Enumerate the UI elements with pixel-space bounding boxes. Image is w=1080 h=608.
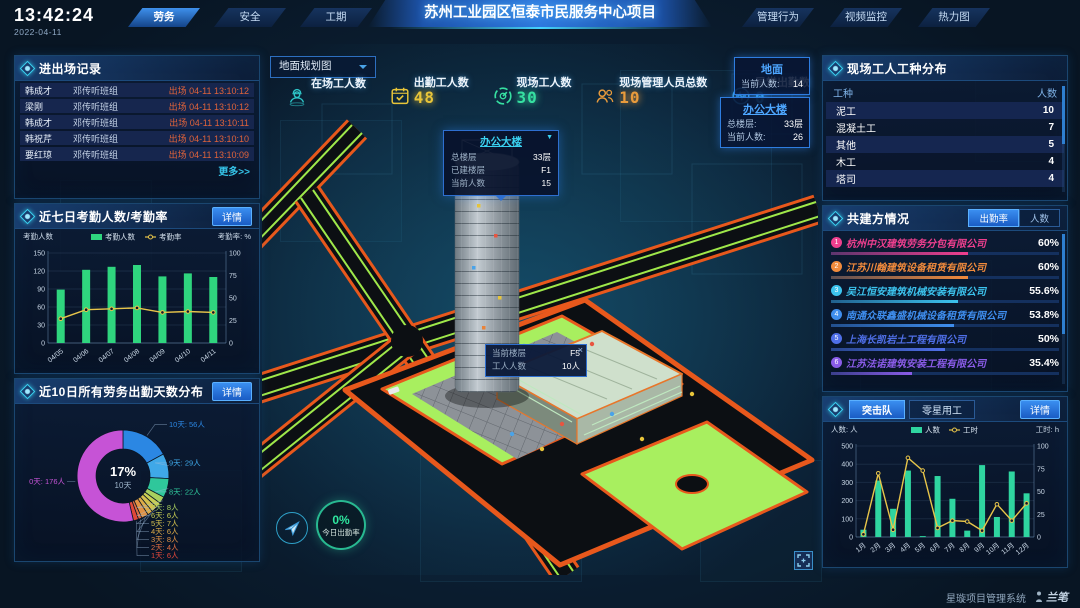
floor-card-地面[interactable]: 地面当前人数:14: [734, 57, 810, 95]
svg-text:考勤人数: 考勤人数: [105, 232, 135, 242]
more-link[interactable]: 更多>>: [15, 161, 259, 178]
header-tabs-left: 劳务安全工期: [128, 8, 372, 27]
worktype-count: 5: [1048, 139, 1054, 150]
system-name: 星璇项目管理系统: [946, 590, 1026, 605]
chevron-down-icon[interactable]: ▼: [546, 134, 553, 141]
tooltip-label: 已建楼层: [451, 164, 485, 177]
attendance-bar-line-chart: 考勤人数考勤率: %考勤人数考勤率03060901201500255075100…: [21, 229, 253, 370]
svg-text:50: 50: [1037, 489, 1045, 496]
worktype-name: 混凝土工: [836, 120, 876, 135]
diamond-icon: [20, 60, 36, 76]
svg-text:100: 100: [229, 251, 241, 258]
partner-name: 吴江恒安建筑机械安装有限公司: [846, 283, 1025, 298]
worktype-name: 其他: [836, 137, 856, 152]
vendor-logo: 兰笔: [1034, 589, 1068, 605]
panel-title: 现场工人工种分布: [847, 60, 947, 77]
panel-title: 近10日所有劳务出勤天数分布: [39, 383, 203, 400]
svg-text:0: 0: [41, 341, 45, 348]
building-tooltip: 办公大楼 ▼ 总楼层33层已建楼层F1当前人数15: [443, 130, 559, 196]
svg-text:1天: 6人: 1天: 6人: [151, 551, 179, 560]
stat-现场工人数: 现场工人数30: [492, 74, 572, 107]
record-row: 韩祝芹邓传听班组出场 04-11 13:10:10: [20, 131, 254, 145]
stat-出勤工人数: 出勤工人数48: [389, 74, 469, 107]
record-exit-time: 出场 04-11 13:10:12: [169, 100, 249, 113]
record-exit-time: 出场 04-11 13:10:12: [169, 84, 249, 97]
partner-value: 53.8%: [1029, 309, 1059, 321]
scrollbar[interactable]: [1062, 86, 1065, 192]
attendance-rate-value: 0%: [332, 513, 349, 527]
panel-entry-exit-records: 进出场记录 韩成才邓传听班组出场 04-11 13:10:12梁刚邓传听班组出场…: [14, 55, 260, 199]
header-tab-热力图[interactable]: 热力图: [918, 8, 990, 27]
svg-text:500: 500: [841, 444, 853, 451]
partner-item: 5上海长凯岩土工程有限公司50%: [831, 331, 1059, 351]
record-worker-name: 要红琼: [25, 148, 73, 161]
svg-text:25: 25: [229, 318, 237, 325]
svg-text:25: 25: [1037, 512, 1045, 519]
svg-text:10天: 56人: 10天: 56人: [169, 420, 205, 429]
svg-text:工时: 工时: [963, 425, 978, 435]
svg-text:04/10: 04/10: [174, 348, 192, 364]
svg-text:工时: h: 工时: h: [1036, 424, 1059, 434]
svg-text:90: 90: [37, 287, 45, 294]
partner-rank-badge: 4: [831, 309, 842, 320]
record-team-name: 邓传听班组: [73, 84, 169, 97]
worktype-row: 混凝土工7: [826, 119, 1064, 136]
page-title: 苏州工业园区恒泰市民服务中心项目: [368, 0, 712, 27]
svg-text:4月: 4月: [899, 541, 913, 554]
tooltip-label: 工人人数: [492, 360, 526, 373]
record-row: 韩成才邓传听班组出场 04-11 13:10:11: [20, 115, 254, 129]
record-team-name: 邓传听班组: [73, 100, 169, 113]
panel-teams-chart: 突击队零星用工 详情 人数: 人工时: h人数工时010020030040050…: [822, 396, 1068, 568]
tooltip-label: 当前楼层: [492, 347, 526, 360]
worktype-table-header: 工种 人数: [823, 81, 1067, 102]
svg-text:0: 0: [1037, 535, 1041, 542]
stat-value: 10: [619, 90, 707, 107]
building-tooltip-row: 当前人数15: [451, 177, 551, 190]
partner-value: 50%: [1038, 333, 1059, 345]
record-row: 韩成才邓传听班组出场 04-11 13:10:12: [20, 83, 254, 97]
partner-name: 江苏法诺建筑安装工程有限公司: [846, 355, 1025, 370]
stat-现场管理人员总数: 现场管理人员总数10: [594, 74, 707, 107]
floor-tooltip: × 当前楼层F5工人人数10人: [485, 344, 587, 377]
stat-value: [311, 91, 366, 107]
record-exit-time: 出场 04-11 13:10:11: [169, 116, 249, 129]
svg-text:9天: 29人: 9天: 29人: [169, 458, 201, 467]
navigation-arrow-icon: [282, 518, 302, 538]
stat-label: 在场工人数: [311, 75, 366, 91]
partner-item: 3吴江恒安建筑机械安装有限公司55.6%: [831, 283, 1059, 303]
pond: [676, 475, 708, 493]
svg-text:04/06: 04/06: [72, 348, 90, 364]
partner-name: 南通众联鑫盛机械设备租赁有限公司: [846, 307, 1025, 322]
record-worker-name: 韩成才: [25, 84, 73, 97]
title-underline: [390, 27, 690, 29]
svg-text:60: 60: [37, 305, 45, 312]
header-tab-劳务[interactable]: 劳务: [128, 8, 200, 27]
panel-title: 近七日考勤人数/考勤率: [39, 208, 168, 225]
partner-rank-badge: 3: [831, 285, 842, 296]
partner-progress: [831, 372, 912, 375]
partner-name: 上海长凯岩土工程有限公司: [846, 331, 1034, 346]
road-intersection: [391, 325, 423, 357]
building-tooltip-title[interactable]: 办公大楼: [451, 134, 551, 149]
diamond-icon: [828, 210, 844, 226]
partners-tab-人数[interactable]: 人数: [1019, 209, 1060, 227]
worktype-name: 木工: [836, 154, 856, 169]
attendance-days-donut-chart: 10天: 56人9天: 29人8天: 22人7天: 8人6天: 6人5天: 7人…: [21, 404, 253, 560]
partner-rank-badge: 5: [831, 333, 842, 344]
gauge-icon: [492, 85, 514, 107]
svg-text:3月: 3月: [884, 541, 898, 554]
worktype-name: 塔司: [836, 171, 856, 186]
tooltip-value: F1: [541, 164, 551, 177]
panel-attendance-days-distribution: 近10日所有劳务出勤天数分布 详情 10天: 56人9天: 29人8天: 22人…: [14, 378, 260, 562]
svg-text:100: 100: [841, 516, 853, 523]
record-worker-name: 梁刚: [25, 100, 73, 113]
header-tab-工期[interactable]: 工期: [300, 8, 372, 27]
partner-value: 55.6%: [1029, 285, 1059, 297]
teams-bar-line-chart: 人数: 人工时: h人数工时01002003004005000255075100…: [829, 422, 1061, 564]
teams-tab-突击队[interactable]: 突击队: [849, 400, 905, 419]
floor-card-label: 当前人数:: [741, 78, 780, 91]
floor-card-title: 地面: [741, 61, 803, 77]
svg-text:0: 0: [229, 341, 233, 348]
floor-tooltip-row: 当前楼层F5: [492, 347, 580, 360]
vendor-logo-icon: [1034, 591, 1044, 603]
worktype-header-count: 人数: [1037, 85, 1057, 100]
svg-text:8月: 8月: [958, 541, 972, 554]
worktype-table: 泥工10混凝土工7其他5木工4塔司4: [823, 102, 1067, 187]
partner-item: 1杭州中汉建筑劳务分包有限公司60%: [831, 235, 1059, 255]
partner-progress: [831, 276, 968, 279]
svg-text:120: 120: [33, 269, 45, 276]
panel-title: 共建方情况: [847, 210, 910, 227]
svg-text:100: 100: [1037, 444, 1049, 451]
calendar-check-icon: [389, 85, 411, 107]
worktype-name: 泥工: [836, 103, 856, 118]
svg-text:04/08: 04/08: [123, 348, 141, 364]
header-tabs-right: 管理行为视频监控热力图: [742, 8, 990, 27]
floor-card-value: 14: [793, 78, 803, 91]
teams-tabs: 突击队零星用工: [849, 400, 975, 419]
panel-worktype-distribution: 现场工人工种分布 工种 人数 泥工10混凝土工7其他5木工4塔司4: [822, 55, 1068, 201]
svg-text:人数: 人数: [925, 425, 940, 435]
building-tooltip-row: 已建楼层F1: [451, 164, 551, 177]
worker-icon: [286, 85, 308, 107]
svg-text:04/11: 04/11: [200, 348, 218, 364]
partner-progress: [831, 300, 958, 303]
svg-text:12月: 12月: [1014, 541, 1031, 556]
svg-text:9月: 9月: [973, 541, 987, 554]
partner-rank-badge: 1: [831, 237, 842, 248]
tooltip-label: 总楼层: [451, 151, 477, 164]
floor-card-label: 总楼层:: [727, 118, 757, 131]
record-team-name: 邓传听班组: [73, 116, 169, 129]
worktype-row: 塔司4: [826, 170, 1064, 187]
header-tab-视频监控[interactable]: 视频监控: [830, 8, 902, 27]
worktype-count: 7: [1048, 122, 1054, 133]
partner-value: 60%: [1038, 237, 1059, 249]
teams-tab-零星用工[interactable]: 零星用工: [909, 400, 975, 419]
svg-text:04/09: 04/09: [149, 348, 167, 364]
header-tab-安全[interactable]: 安全: [214, 8, 286, 27]
diamond-icon: [828, 60, 844, 76]
svg-text:考勤率: %: 考勤率: %: [218, 231, 252, 241]
svg-text:0: 0: [849, 535, 853, 542]
record-team-name: 邓传听班组: [73, 148, 169, 161]
diamond-icon: [20, 208, 36, 224]
stat-在场工人数: 在场工人数: [286, 75, 366, 107]
svg-text:11月: 11月: [1000, 541, 1016, 556]
svg-text:04/07: 04/07: [98, 348, 116, 364]
tooltip-value: 10人: [562, 360, 580, 373]
record-exit-time: 出场 04-11 13:10:10: [169, 132, 249, 145]
partner-item: 2江苏川翰建筑设备租赁有限公司60%: [831, 259, 1059, 279]
scrollbar[interactable]: [1062, 234, 1065, 384]
svg-text:17%: 17%: [110, 464, 136, 479]
svg-text:10月: 10月: [985, 541, 1002, 556]
partner-progress: [831, 252, 968, 255]
svg-text:8天: 22人: 8天: 22人: [169, 487, 201, 496]
worktype-row: 木工4: [826, 153, 1064, 170]
partner-item: 6江苏法诺建筑安装工程有限公司35.4%: [831, 355, 1059, 375]
current-date: 2022-04-11: [14, 27, 94, 37]
svg-text:0天: 176人: 0天: 176人: [29, 477, 65, 486]
current-time: 13:42:24: [14, 5, 94, 26]
svg-text:7月: 7月: [943, 541, 957, 554]
partner-value: 60%: [1038, 261, 1059, 273]
svg-text:300: 300: [841, 480, 853, 487]
vendor-logo-text: 兰笔: [1046, 589, 1068, 605]
svg-text:50: 50: [229, 296, 237, 303]
records-list: 韩成才邓传听班组出场 04-11 13:10:12梁刚邓传听班组出场 04-11…: [15, 83, 259, 161]
tooltip-value: 33层: [533, 151, 551, 164]
clock: 13:42:24 2022-04-11: [14, 5, 94, 37]
worktype-row: 其他5: [826, 136, 1064, 153]
tooltip-value: 15: [542, 177, 551, 190]
partner-progress: [831, 324, 954, 327]
stat-value: 30: [517, 90, 572, 107]
tooltip-label: 当前人数: [451, 177, 485, 190]
floor-card-value: 33层: [784, 118, 803, 131]
svg-text:考勤人数: 考勤人数: [23, 231, 53, 241]
svg-text:人数: 人: 人数: 人: [831, 424, 858, 434]
svg-text:1月: 1月: [854, 541, 868, 554]
svg-text:考勤率: 考勤率: [159, 232, 182, 242]
svg-text:5月: 5月: [913, 541, 927, 554]
people-icon: [594, 85, 616, 107]
panel-attendance-chart: 近七日考勤人数/考勤率 详情 考勤人数考勤率: %考勤人数考勤率03060901…: [14, 203, 260, 374]
svg-text:75: 75: [229, 273, 237, 280]
partner-value: 35.4%: [1029, 357, 1059, 369]
partners-tabs: 出勤率人数: [968, 209, 1060, 227]
floor-tooltip-row: 工人人数10人: [492, 360, 580, 373]
record-row: 梁刚邓传听班组出场 04-11 13:10:12: [20, 99, 254, 113]
floor-card-办公大楼[interactable]: 办公大楼总楼层:33层当前人数:26: [720, 97, 810, 148]
partner-rank-badge: 6: [831, 357, 842, 368]
svg-text:200: 200: [841, 498, 853, 505]
partner-name: 江苏川翰建筑设备租赁有限公司: [846, 259, 1034, 274]
worktype-row: 泥工10: [826, 102, 1064, 119]
partner-progress: [831, 348, 945, 351]
worktype-count: 10: [1043, 105, 1054, 116]
diamond-icon: [828, 401, 844, 417]
floor-card-value: 26: [793, 131, 803, 144]
close-icon[interactable]: ×: [578, 345, 583, 355]
panel-partners: 共建方情况 出勤率人数 1杭州中汉建筑劳务分包有限公司60%2江苏川翰建筑设备租…: [822, 205, 1068, 392]
building-tooltip-row: 总楼层33层: [451, 151, 551, 164]
today-attendance-badge: 0% 今日出勤率: [316, 500, 366, 550]
svg-text:400: 400: [841, 462, 853, 469]
svg-text:6月: 6月: [928, 541, 942, 554]
floor-card-title: 办公大楼: [727, 101, 803, 117]
dashboard-root: { "header": { "time": "13:42:24", "date"…: [0, 0, 1080, 608]
record-exit-time: 出场 04-11 13:10:09: [169, 148, 249, 161]
detail-button[interactable]: 详情: [212, 207, 252, 226]
partner-name: 杭州中汉建筑劳务分包有限公司: [846, 235, 1034, 250]
svg-text:75: 75: [1037, 466, 1045, 473]
record-worker-name: 韩成才: [25, 116, 73, 129]
compass-control[interactable]: [276, 512, 308, 544]
detail-button[interactable]: 详情: [212, 382, 252, 401]
stat-value: 48: [414, 90, 469, 107]
panel-title: 进出场记录: [39, 60, 102, 77]
record-worker-name: 韩祝芹: [25, 132, 73, 145]
fullscreen-icon: [795, 552, 812, 569]
worktype-count: 4: [1048, 156, 1054, 167]
detail-button[interactable]: 详情: [1020, 400, 1060, 419]
header-tab-管理行为[interactable]: 管理行为: [742, 8, 814, 27]
record-row: 要红琼邓传听班组出场 04-11 13:10:09: [20, 147, 254, 161]
svg-text:10天: 10天: [115, 481, 132, 490]
svg-text:30: 30: [37, 323, 45, 330]
fullscreen-button[interactable]: [794, 551, 813, 570]
svg-text:150: 150: [33, 251, 45, 258]
partner-rank-badge: 2: [831, 261, 842, 272]
attendance-rate-label: 今日出勤率: [322, 527, 360, 538]
record-team-name: 邓传听班组: [73, 132, 169, 145]
floor-card-label: 当前人数:: [727, 131, 766, 144]
partners-list: 1杭州中汉建筑劳务分包有限公司60%2江苏川翰建筑设备租赁有限公司60%3吴江恒…: [823, 231, 1067, 390]
diamond-icon: [20, 383, 36, 399]
worktype-count: 4: [1048, 173, 1054, 184]
partners-tab-出勤率[interactable]: 出勤率: [968, 209, 1019, 227]
svg-text:2月: 2月: [869, 541, 883, 554]
footer: 星璇项目管理系统 兰笔: [946, 589, 1068, 605]
worktype-header-type: 工种: [833, 85, 853, 100]
partner-item: 4南通众联鑫盛机械设备租赁有限公司53.8%: [831, 307, 1059, 327]
svg-text:04/05: 04/05: [47, 348, 65, 364]
